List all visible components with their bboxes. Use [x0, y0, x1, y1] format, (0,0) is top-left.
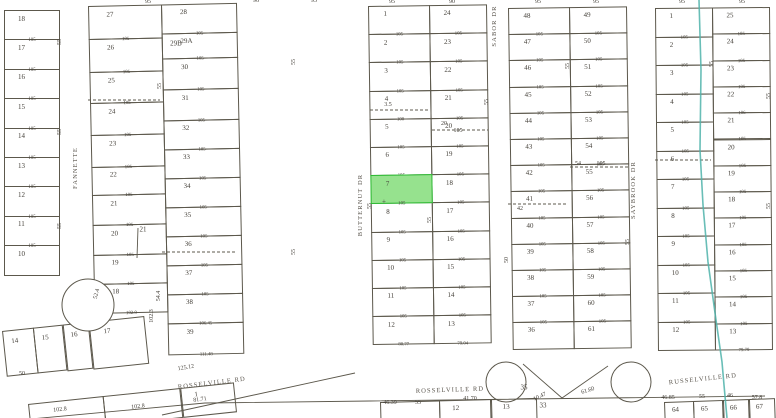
parcel[interactable]: 23105 — [296, 201, 351, 231]
parcel[interactable]: 5105 — [233, 116, 296, 146]
parcel[interactable]: 30105 — [162, 57, 239, 91]
parcel-dimension: 105 — [261, 115, 268, 120]
parcel-lot-number: 50 — [584, 38, 591, 45]
parcel-lot-number: 10 — [387, 265, 394, 272]
dimension-label: 55 — [157, 83, 163, 89]
parcel-lot-number: 32 — [182, 125, 189, 132]
parcel-dimension: 89.04 — [319, 313, 330, 318]
parcel[interactable]: 59105 — [573, 268, 631, 296]
parcel-dimension: 105 — [597, 215, 604, 220]
parcel[interactable]: 18105 — [295, 60, 350, 90]
parcel[interactable]: 1379.79 — [715, 323, 773, 351]
parcel-lot-number: 15 — [447, 264, 454, 271]
parcel-dimension: 105 — [738, 58, 745, 63]
dimension-label: 55 — [625, 239, 631, 245]
parcel-dimension: 105 — [28, 126, 35, 131]
parcel-dimension: 105 — [739, 242, 746, 247]
parcel-dimension: 105 — [457, 201, 464, 206]
dimension-label: 95 — [145, 0, 151, 5]
parcel[interactable]: 37105 — [512, 295, 574, 323]
parcel[interactable]: 27105 — [88, 4, 163, 40]
stray-lot-number: + — [382, 199, 386, 206]
dimension-label: 90 — [449, 0, 455, 5]
parcel-lot-number: 53 — [585, 117, 592, 124]
dimension-label: 3.5 — [384, 102, 392, 108]
dimension-label: 46 — [727, 393, 733, 399]
dimension-label: 50 — [504, 257, 510, 263]
parcel[interactable]: 3105 — [369, 62, 431, 92]
parcel[interactable]: 21105 — [92, 193, 167, 226]
parcel-dimension: 111.48 — [200, 352, 213, 357]
dimension-label: 55 — [415, 400, 421, 406]
parcel[interactable]: 50105 — [569, 33, 627, 61]
parcel[interactable]: 3105 — [233, 60, 296, 90]
parcel[interactable]: 2689.04 — [297, 286, 352, 316]
parcel[interactable]: 23105 — [429, 33, 487, 63]
parcel[interactable]: 41105 — [511, 191, 573, 219]
dimension-label: 95 — [311, 0, 317, 4]
parcel[interactable]: 39105 — [511, 243, 573, 271]
parcel[interactable]: 56105 — [572, 190, 630, 218]
parcel[interactable]: 1396.69 — [236, 340, 299, 370]
parcel-lot-number: 18 — [728, 196, 735, 203]
parcel-lot-number: 15 — [41, 334, 49, 342]
dimension-label: 46.85 — [661, 395, 675, 401]
parcel[interactable]: 17105 — [294, 32, 349, 62]
parcel[interactable]: 10 — [4, 245, 60, 275]
parcel-lot-number: 23 — [727, 65, 734, 72]
parcel[interactable]: 23105 — [712, 60, 770, 88]
parcel-lot-number: 2 — [670, 42, 674, 49]
parcel[interactable]: 35105 — [165, 206, 242, 238]
parcel[interactable]: 18105 — [431, 174, 489, 204]
parcel[interactable]: 9105 — [371, 231, 433, 261]
parcel[interactable]: 20105 — [713, 138, 771, 166]
parcel[interactable]: 24105 — [429, 4, 487, 34]
parcel-dimension: 102.91 — [260, 311, 273, 316]
parcel-dimension: 105 — [124, 133, 131, 138]
parcel[interactable]: 13105 — [4, 157, 60, 187]
parcel-lot-number: 6 — [385, 152, 389, 159]
parcel[interactable]: 17 — [89, 316, 150, 370]
parcel[interactable]: 11105 — [372, 287, 434, 317]
parcel-lot-number: 15 — [729, 275, 736, 282]
parcel-lot-number: 1 — [669, 13, 673, 20]
parcel-lot-number: 13 — [448, 320, 455, 327]
parcel[interactable]: 15105 — [714, 270, 772, 298]
parcel-dimension: 105 — [595, 31, 602, 36]
parcel-dimension: 105 — [538, 216, 545, 221]
parcel[interactable]: 64 — [664, 401, 695, 418]
parcel-lot-number: 47 — [524, 39, 531, 46]
parcel-lot-number: 33 — [183, 154, 190, 161]
parcel-dimension: 105 — [319, 87, 326, 92]
parcel-lot-number: 1 — [383, 11, 387, 18]
parcel-dimension: 105 — [596, 136, 603, 141]
parcel-lot-number: 19 — [309, 94, 316, 101]
parcel-dimension: 102.9 — [126, 311, 137, 316]
parcel[interactable]: 11105 — [657, 292, 715, 322]
parcel-lot-number: 5 — [385, 124, 389, 131]
parcel[interactable]: 44105 — [509, 112, 571, 140]
parcel-lot-number: 27 — [106, 12, 113, 19]
parcel-lot-number: 10 — [672, 270, 679, 277]
parcel-dimension: 102.2 — [261, 283, 272, 288]
parcel[interactable]: 66 — [723, 399, 750, 418]
parcel[interactable]: 16105 — [432, 230, 490, 260]
parcel-lot-number: 66 — [730, 405, 737, 412]
parcel[interactable]: 10102.2 — [235, 256, 298, 286]
parcel[interactable]: 6105 — [233, 144, 296, 174]
dimension-label: 55 — [367, 203, 373, 209]
parcel[interactable]: 16105 — [294, 4, 349, 34]
stray-lot-number: 33 — [540, 403, 547, 410]
parcel-dimension: 105 — [261, 87, 268, 92]
parcel[interactable]: 4105 — [656, 93, 714, 123]
parcel[interactable]: 61 — [573, 321, 631, 349]
parcel[interactable]: 21105 — [430, 89, 488, 119]
parcel-dimension: 106.45 — [199, 321, 212, 326]
parcel-lot-number: 13 — [503, 404, 510, 411]
parcel[interactable]: 4100 — [369, 90, 431, 120]
parcel-lot-number: 8 — [250, 206, 254, 213]
parcel-lot-number: 24 — [444, 10, 451, 17]
dimension-label: 55 — [766, 93, 772, 99]
parcel-lot-number: 23 — [444, 38, 451, 45]
parcel[interactable]: 16105 — [4, 69, 60, 99]
parcel-dimension: 71.12 — [320, 369, 331, 374]
parcel-lot-number: 3 — [248, 66, 252, 73]
parcel[interactable]: 11105 — [4, 216, 60, 246]
parcel-lot-number: 26 — [107, 45, 114, 52]
parcel[interactable]: 39111.48 — [168, 322, 245, 356]
parcel[interactable]: 38106.45 — [167, 293, 244, 325]
parcel[interactable]: 33105 — [164, 148, 241, 180]
parcel-lot-number: 11 — [251, 290, 258, 297]
parcel-dimension: 100 — [397, 117, 404, 122]
parcel-lot-number: 11 — [18, 221, 25, 228]
parcel-dimension: 105 — [28, 156, 35, 161]
parcel-dimension: 105 — [458, 257, 465, 262]
parcel-dimension: 106 — [738, 111, 745, 116]
parcel[interactable]: 21105 — [295, 145, 350, 175]
parcel-dimension: 105 — [201, 292, 208, 297]
parcel-dimension: 105 — [456, 88, 463, 93]
parcel-lot-number: 20 — [111, 230, 118, 237]
parcel-dimension: 105 — [536, 85, 543, 90]
parcel-dimension: 105 — [537, 111, 544, 116]
parcel[interactable]: 1105 — [232, 4, 295, 34]
parcel[interactable]: 60105 — [573, 294, 631, 322]
parcel-dimension: 105 — [598, 241, 605, 246]
parcel-dimension: 105 — [740, 295, 747, 300]
parcel[interactable]: 5105 — [370, 118, 432, 148]
parcel-dimension: 105 — [261, 143, 268, 148]
parcel[interactable]: 49105 — [569, 6, 627, 34]
dimension-label: 54.4 — [156, 291, 162, 302]
parcel-lot-number: 28 — [311, 348, 318, 355]
selected-parcel[interactable]: 7105 — [370, 174, 432, 204]
dimension-label: 55 — [565, 63, 571, 69]
parcel-lot-number: 37 — [185, 270, 192, 277]
street-label: SAYBROOK DR — [631, 161, 638, 219]
parcel-dimension: 105 — [682, 177, 689, 182]
dimension-label: 50 — [19, 371, 25, 377]
parcel[interactable]: 48105 — [508, 7, 570, 35]
parcel[interactable]: 8105 — [234, 200, 297, 230]
dimension-label: 41.70 — [463, 396, 477, 402]
parcel[interactable]: 8105 — [371, 203, 433, 233]
parcel[interactable]: 36 — [512, 321, 574, 349]
parcel[interactable]: 17105 — [432, 202, 490, 232]
parcel-dimension: 105 — [399, 286, 406, 291]
parcel-dimension: 105 — [397, 89, 404, 94]
parcel[interactable]: 17105 — [714, 217, 772, 245]
parcel-dimension: 105 — [262, 227, 269, 232]
parcel[interactable]: 15105 — [4, 98, 60, 128]
parcel[interactable]: 10105 — [372, 259, 434, 289]
dimension-label: 95 — [389, 0, 395, 5]
dimension-label: 55 — [57, 39, 63, 45]
parcel-lot-number: 45 — [525, 91, 532, 98]
parcel[interactable]: 1379.04 — [433, 314, 491, 344]
parcel[interactable]: 2105 — [232, 32, 295, 62]
parcel-dimension: 105 — [399, 258, 406, 263]
parcel-dimension: 105 — [398, 201, 405, 206]
parcel[interactable]: 51105 — [570, 59, 628, 87]
dimension-label: 125.12 — [177, 364, 194, 373]
parcel[interactable]: 25105 — [297, 258, 352, 288]
parcel[interactable]: 58105 — [572, 242, 630, 270]
parcel[interactable]: 15105 — [433, 258, 491, 288]
parcel-dimension: 105 — [263, 255, 270, 260]
parcel-lot-number: 36 — [528, 327, 535, 334]
parcel-lot-number: 17 — [446, 208, 453, 215]
parcel[interactable]: 19105 — [93, 253, 168, 285]
parcel-dimension: 105 — [396, 60, 403, 65]
street-label: ROSSELVILLE RD — [416, 387, 485, 396]
parcel[interactable]: 20105 — [295, 117, 350, 147]
parcel[interactable]: 24105 — [90, 101, 165, 136]
parcel-dimension: 105 — [198, 147, 205, 152]
parcel[interactable]: 55105 — [571, 164, 629, 192]
parcel[interactable]: 67 — [749, 398, 776, 418]
parcel[interactable]: 2871.12 — [298, 342, 353, 372]
parcel-dimension: 105 — [596, 110, 603, 115]
parcel-lot-number: 31 — [182, 95, 189, 102]
parcel[interactable]: 3105 — [655, 64, 713, 94]
parcel-dimension: 105 — [682, 234, 689, 239]
parcel-dimension: 105 — [681, 92, 688, 97]
parcel[interactable]: 12105 — [4, 186, 60, 216]
parcel-lot-number: 2 — [384, 39, 388, 46]
parcel-lot-number: 17 — [728, 223, 735, 230]
parcel[interactable]: 19105 — [295, 88, 350, 118]
parcel-dimension: 105 — [319, 115, 326, 120]
parcel[interactable]: 11102.91 — [235, 284, 298, 314]
parcel-lot-number: 59 — [587, 274, 594, 281]
parcel[interactable]: 12 — [658, 321, 716, 351]
parcel-lot-number: 9 — [250, 234, 254, 241]
parcel-lot-number: 44 — [525, 117, 532, 124]
parcel[interactable]: 20105 — [93, 223, 168, 256]
parcel[interactable]: 19105 — [431, 145, 489, 175]
parcel[interactable]: 1105 — [655, 7, 713, 37]
parcel[interactable]: 22105 — [91, 165, 166, 196]
parcel-lot-number: 14 — [11, 337, 19, 345]
parcel[interactable]: 23105 — [91, 133, 166, 168]
parcel[interactable]: 19105 — [713, 165, 771, 193]
parcel-dimension: 105 — [196, 31, 203, 36]
dimension-label: 57.8 — [752, 395, 763, 401]
parcel-dimension: 79.04 — [457, 342, 468, 347]
parcel-lot-number: 20 — [728, 144, 735, 151]
parcel-lot-number: 14 — [729, 302, 736, 309]
parcel-lot-number: 13 — [729, 328, 736, 335]
parcel-dimension: 105 — [318, 31, 325, 36]
parcel-dimension: 105 — [538, 163, 545, 168]
parcel-dimension: 105 — [320, 228, 327, 233]
parcel-dimension: 105 — [539, 242, 546, 247]
parcel-lot-number: 36 — [185, 241, 192, 248]
parcel-dimension: 105 — [683, 291, 690, 296]
parcel[interactable]: 15 — [33, 325, 68, 374]
parcel-lot-number: 2 — [248, 38, 252, 45]
parcel-lot-number: 24 — [310, 235, 317, 242]
parcel[interactable]: 10105 — [657, 264, 715, 294]
parcel-dimension: 105 — [540, 320, 547, 325]
parcel-lot-number: 41 — [526, 196, 533, 203]
parcel[interactable]: 38105 — [512, 269, 574, 297]
parcel-lot-number: 12 — [388, 321, 395, 328]
parcel[interactable]: 2791.08 — [297, 314, 352, 344]
parcel[interactable]: 7105 — [656, 178, 714, 208]
parcel-lot-number: 57 — [586, 221, 593, 228]
parcel[interactable] — [28, 396, 107, 418]
parcel-dimension: 79.79 — [739, 348, 750, 353]
parcel-lot-number: 27 — [311, 320, 318, 327]
parcel[interactable]: 14105 — [433, 286, 491, 316]
parcel[interactable]: 2105 — [368, 33, 430, 63]
parcel-lot-number: 8 — [386, 208, 390, 215]
parcel[interactable]: 53105 — [570, 111, 628, 139]
parcel[interactable]: 5105 — [656, 121, 714, 151]
parcel[interactable]: 2105 — [655, 36, 713, 66]
parcel[interactable]: 26105 — [89, 37, 164, 73]
parcel-lot-number: 13 — [251, 346, 258, 353]
parcel[interactable]: 47105 — [508, 33, 570, 61]
parcel[interactable]: 46105 — [509, 60, 571, 88]
parcel-lot-number: 67 — [756, 404, 763, 411]
parcel-dimension: 105 — [458, 285, 465, 290]
parcel[interactable]: 22105 — [296, 173, 351, 203]
parcel[interactable]: 24105 — [296, 229, 351, 259]
parcel[interactable]: 9105 — [657, 235, 715, 265]
parcel-lot-number: 20 — [309, 122, 316, 129]
parcel-lot-number: 17 — [308, 38, 315, 45]
parcel[interactable]: 6105 — [370, 146, 432, 176]
parcel[interactable]: 1298.13 — [235, 312, 298, 342]
dimension-label: 105 — [454, 128, 463, 134]
parcel-lot-number: 26 — [311, 291, 318, 298]
street-label: SABOR DR — [492, 5, 499, 46]
parcel[interactable]: 6105 — [656, 150, 714, 180]
parcel[interactable]: 14105 — [715, 296, 773, 324]
dimension-label: 105 — [597, 161, 606, 167]
parcel[interactable]: 31105 — [163, 88, 240, 122]
parcel-lot-number: 11 — [672, 298, 679, 305]
parcel-lot-number: 18 — [446, 179, 453, 186]
parcel[interactable]: 25105 — [712, 7, 770, 35]
parcel[interactable]: 37105 — [166, 264, 243, 296]
parcel[interactable]: 24105 — [712, 33, 770, 61]
plat-map-canvas[interactable]: 1810517105161051510514105131051210511105… — [0, 0, 776, 418]
parcel-dimension: 105 — [197, 87, 204, 92]
parcel-lot-number: 12 — [18, 192, 25, 199]
parcel[interactable]: 18105 — [4, 10, 60, 40]
parcel[interactable]: 34105 — [165, 177, 242, 209]
parcel[interactable]: 16105 — [714, 244, 772, 272]
dimension-label: 55 — [484, 99, 490, 105]
parcel-lot-number: 39 — [527, 248, 534, 255]
parcel[interactable]: 1105 — [368, 5, 430, 35]
parcel-lot-number: 30 — [181, 64, 188, 71]
parcel-lot-number: 18 — [308, 66, 315, 73]
parcel-lot-number: 25 — [310, 263, 317, 270]
parcel-lot-number: 14 — [18, 133, 25, 140]
parcel[interactable]: 25105 — [89, 70, 164, 104]
parcel-lot-number: 55 — [586, 169, 593, 176]
parcel[interactable]: 14105 — [4, 128, 60, 158]
parcel[interactable]: 42105 — [510, 164, 572, 192]
parcel-dimension: 105 — [320, 200, 327, 205]
parcel[interactable]: 9105 — [234, 228, 297, 258]
parcel-dimension: 105 — [199, 176, 206, 181]
parcel-dimension: 105 — [597, 189, 604, 194]
parcel[interactable]: 7105 — [234, 172, 297, 202]
parcel[interactable]: 1280.77 — [372, 315, 434, 345]
cul-de-sac — [611, 362, 651, 402]
parcel[interactable]: 36105 — [166, 235, 243, 267]
parcel[interactable]: 22105 — [430, 61, 488, 91]
parcel[interactable]: 28105 — [161, 3, 238, 35]
parcel-dimension: 105 — [28, 97, 35, 102]
parcel[interactable]: 21105 — [713, 112, 771, 140]
dimension-label: 55 — [291, 59, 297, 65]
parcel[interactable]: 32105 — [163, 119, 240, 151]
parcel[interactable]: 17105 — [4, 39, 60, 69]
parcel[interactable]: 13 — [491, 398, 538, 418]
dimension-label: 55 — [57, 223, 63, 229]
parcel-dimension: 105 — [321, 256, 328, 261]
parcel-dimension: 98.13 — [262, 339, 273, 344]
parcel[interactable]: 4105 — [233, 88, 296, 118]
parcel-lot-number: 21 — [727, 118, 734, 125]
dimension-label: 61.60 — [581, 386, 596, 396]
parcel-lot-number: 11 — [387, 293, 394, 300]
parcel[interactable]: 18105 — [714, 191, 772, 219]
parcel[interactable]: 22106 — [713, 86, 771, 114]
dimension-label: 20 — [441, 121, 447, 127]
parcel[interactable]: 8105 — [657, 207, 715, 237]
parcel[interactable]: 43105 — [510, 138, 572, 166]
parcel-lot-number: 22 — [727, 91, 734, 98]
parcel-dimension: 105 — [739, 137, 746, 142]
parcel-dimension: 105 — [536, 32, 543, 37]
parcel-lot-number: 56 — [586, 195, 593, 202]
parcel[interactable]: 65 — [693, 400, 724, 418]
parcel-dimension: 105 — [455, 31, 462, 36]
